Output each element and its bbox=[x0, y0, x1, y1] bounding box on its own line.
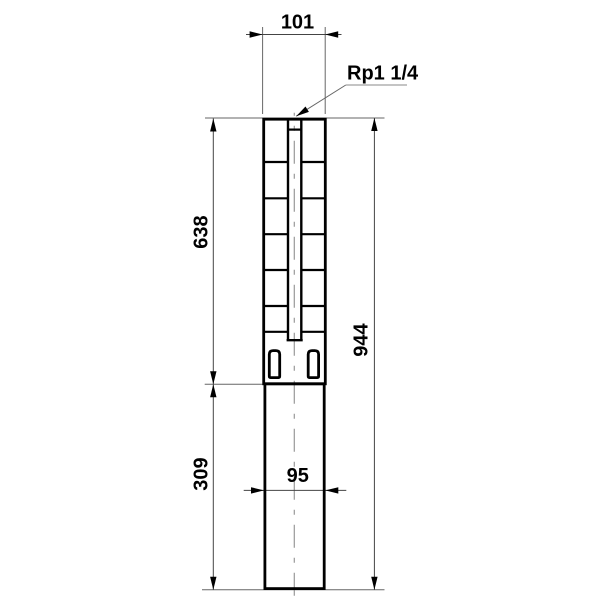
svg-text:Rp1 1/4: Rp1 1/4 bbox=[347, 62, 419, 84]
svg-text:944: 944 bbox=[350, 322, 372, 356]
svg-text:309: 309 bbox=[191, 457, 213, 490]
svg-text:638: 638 bbox=[191, 215, 213, 248]
svg-text:95: 95 bbox=[287, 465, 309, 487]
svg-text:101: 101 bbox=[281, 11, 314, 33]
